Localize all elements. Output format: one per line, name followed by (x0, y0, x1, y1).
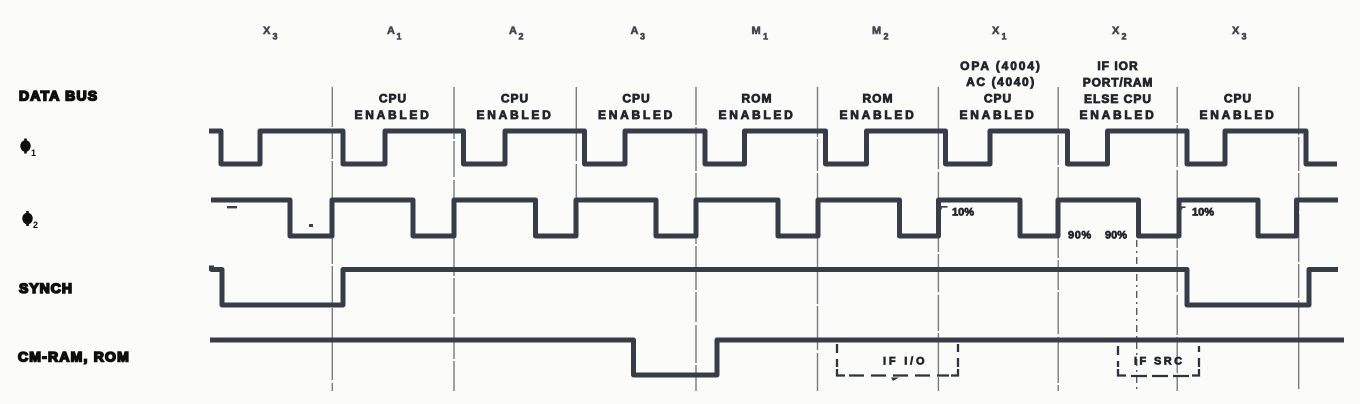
svg-text:2: 2 (33, 220, 38, 230)
svg-text:IF I/O: IF I/O (883, 356, 927, 368)
svg-text:SYNCH: SYNCH (19, 280, 73, 296)
svg-text:PORT/RAM: PORT/RAM (1083, 76, 1153, 90)
svg-text:ROM: ROM (742, 92, 773, 106)
svg-text:A: A (631, 25, 639, 37)
svg-text:X: X (263, 25, 271, 37)
svg-text:ENABLED: ENABLED (598, 108, 675, 122)
svg-text:DATA BUS: DATA BUS (19, 88, 98, 104)
svg-text:1: 1 (1002, 32, 1007, 42)
svg-text:IF SRC: IF SRC (1134, 356, 1184, 368)
svg-text:CPU: CPU (984, 92, 1012, 106)
svg-text:90%: 90% (1105, 230, 1127, 242)
svg-text:3: 3 (1242, 32, 1247, 42)
svg-text:M: M (752, 25, 761, 37)
svg-text:CM-RAM, ROM: CM-RAM, ROM (18, 349, 130, 365)
svg-text:ENABLED: ENABLED (960, 108, 1037, 122)
svg-text:ENABLED: ENABLED (840, 108, 917, 122)
svg-text:CPU: CPU (622, 92, 650, 106)
svg-text:X: X (1112, 25, 1120, 37)
svg-text:1: 1 (31, 148, 36, 158)
svg-text:CPU: CPU (1224, 92, 1252, 106)
svg-text:AC (4040): AC (4040) (966, 75, 1036, 89)
svg-text:ENABLED: ENABLED (1200, 108, 1277, 122)
svg-text:1: 1 (763, 32, 768, 42)
svg-text:3: 3 (273, 32, 278, 42)
svg-text:2: 2 (884, 32, 889, 42)
svg-text:10%: 10% (952, 207, 974, 219)
svg-text:1: 1 (397, 32, 402, 42)
svg-text:X: X (992, 25, 1000, 37)
svg-text:A: A (387, 25, 395, 37)
svg-text:OPA (4004): OPA (4004) (960, 59, 1042, 73)
svg-text:90%: 90% (1068, 230, 1092, 242)
svg-text:2: 2 (519, 32, 524, 42)
svg-text:ENABLED: ENABLED (355, 108, 432, 122)
svg-text:ENABLED: ENABLED (1080, 108, 1157, 122)
svg-text:IF IOR: IF IOR (1097, 59, 1138, 73)
svg-text:ENABLED: ENABLED (477, 108, 554, 122)
svg-text:ENABLED: ENABLED (719, 108, 796, 122)
svg-text:CPU: CPU (501, 92, 529, 106)
svg-text:X: X (1232, 25, 1240, 37)
svg-text:10%: 10% (1192, 207, 1214, 219)
svg-text:3: 3 (640, 32, 645, 42)
svg-text:ROM: ROM (863, 92, 894, 106)
svg-text:2: 2 (1122, 32, 1127, 42)
svg-text:CPU: CPU (379, 92, 407, 106)
svg-text:A: A (509, 25, 517, 37)
svg-text:ELSE CPU: ELSE CPU (1084, 92, 1152, 106)
svg-text:M: M (872, 25, 881, 37)
